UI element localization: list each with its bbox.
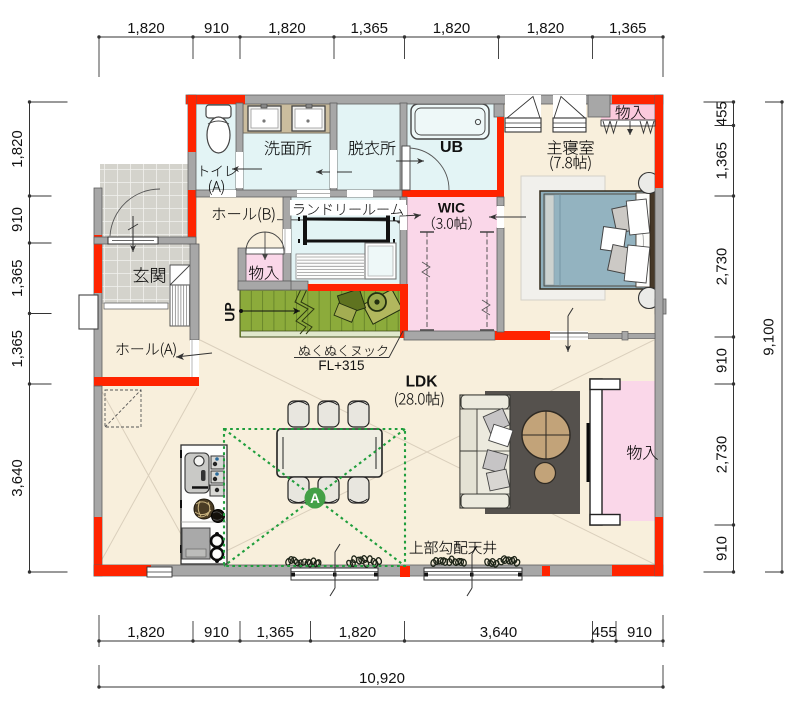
svg-text:1,820: 1,820: [268, 20, 306, 37]
svg-text:1,820: 1,820: [127, 624, 165, 641]
svg-text:1,820: 1,820: [527, 20, 565, 37]
svg-text:1,365: 1,365: [256, 624, 294, 641]
svg-text:UB: UB: [440, 139, 463, 156]
svg-text:910: 910: [627, 624, 652, 641]
svg-text:910: 910: [9, 207, 26, 232]
svg-text:1,820: 1,820: [339, 624, 377, 641]
svg-text:1,820: 1,820: [433, 20, 471, 37]
svg-text:910: 910: [714, 536, 731, 561]
svg-text:455: 455: [592, 624, 617, 641]
svg-text:3,640: 3,640: [480, 624, 518, 641]
svg-text:WIC: WIC: [438, 200, 465, 216]
svg-text:1,365: 1,365: [714, 142, 731, 180]
svg-text:2,730: 2,730: [714, 436, 731, 474]
svg-text:910: 910: [204, 20, 229, 37]
svg-text:1,820: 1,820: [127, 20, 165, 37]
svg-text:2,730: 2,730: [714, 248, 731, 286]
svg-text:910: 910: [714, 348, 731, 373]
svg-text:455: 455: [714, 101, 731, 126]
svg-text:1,365: 1,365: [9, 259, 26, 297]
svg-text:A: A: [310, 491, 320, 506]
svg-text:910: 910: [204, 624, 229, 641]
svg-text:10,920: 10,920: [359, 670, 405, 687]
svg-text:1,365: 1,365: [9, 330, 26, 368]
svg-text:UP: UP: [222, 302, 238, 321]
svg-text:3,640: 3,640: [9, 459, 26, 497]
svg-text:1,365: 1,365: [609, 20, 647, 37]
svg-text:LDK: LDK: [406, 374, 439, 391]
svg-text:1,820: 1,820: [9, 130, 26, 168]
svg-text:9,100: 9,100: [761, 318, 778, 356]
svg-text:1,365: 1,365: [350, 20, 388, 37]
svg-text:FL+315: FL+315: [318, 358, 364, 373]
